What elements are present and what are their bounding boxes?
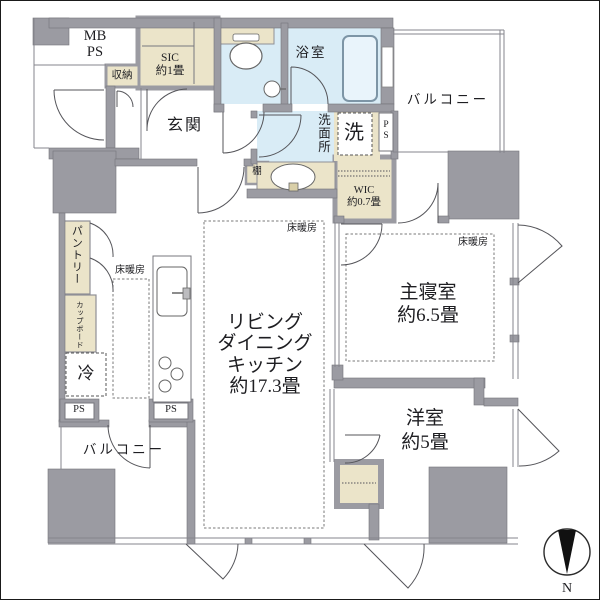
bedroom-outward-door (518, 225, 562, 283)
label-floor-heating-ldk: 床暖房 (287, 223, 317, 234)
bathtub-icon (343, 36, 377, 101)
label-ldk: リビング ダイニング キッチン 約17.3畳 (217, 312, 312, 398)
label-ps-left: PS (73, 404, 85, 416)
hall-ldk-door (198, 167, 244, 213)
toilet-lid (233, 34, 259, 41)
label-washroom: 洗面所 (316, 113, 330, 154)
label-cupboard: カップボード (75, 301, 83, 349)
wic-door (398, 183, 438, 223)
master-bedroom-door (341, 224, 382, 265)
western-room-left-window (330, 389, 334, 462)
label-balcony-top: バルコニー (407, 92, 489, 107)
shuno-door (117, 91, 133, 107)
floor-plan: MB PS 収納 SIC 約1畳 玄関 浴室 バルコニー 洗面所 洗 P S 棚… (0, 0, 600, 600)
ldk-bedroom-partition (335, 223, 339, 367)
vanity-faucet (289, 183, 298, 191)
toilet-icon (230, 43, 262, 69)
kitchen-faucet (183, 288, 190, 299)
label-washer: 洗 (344, 122, 364, 144)
corner-basin-icon (264, 81, 280, 97)
label-ps-vertical: P S (383, 120, 388, 143)
master-bedroom-window (513, 223, 518, 379)
south-window-sash-right (364, 544, 424, 588)
floor-heating-kitchen (113, 279, 149, 398)
western-room-closet (337, 462, 381, 506)
label-wic: WIC 約0.7畳 (347, 185, 381, 209)
label-fridge: 冷 (78, 364, 95, 383)
label-genkan: 玄関 (167, 117, 203, 135)
bathroom-window (382, 47, 393, 87)
label-master-bedroom: 主寝室 約6.5畳 (397, 282, 459, 328)
label-bathroom: 浴室 (296, 45, 327, 60)
label-sic: SIC 約1畳 (156, 52, 185, 78)
label-floor-heating-bedroom: 床暖房 (458, 237, 488, 248)
western-room-outward-door (518, 409, 559, 466)
closet-door (345, 435, 380, 463)
kitchen-sink-icon (157, 267, 187, 316)
compass (544, 529, 590, 575)
label-shelf: 棚 (252, 167, 262, 178)
label-compass-north: N (562, 581, 572, 597)
south-window-sash-left (186, 544, 238, 579)
label-pantry: パントリー (70, 225, 82, 285)
label-mb-ps: MB PS (84, 28, 107, 60)
label-western-room: 洋室 約5畳 (401, 407, 449, 455)
label-balcony-bottom: バルコニー (83, 442, 165, 457)
label-shuno: 収納 (112, 70, 133, 82)
entry-door (54, 90, 104, 140)
floor-plan-drawing (1, 1, 600, 600)
label-ps-mid: PS (165, 404, 177, 416)
pantry-folding-door (90, 223, 113, 292)
label-floor-heating-kitchen: 床暖房 (115, 265, 145, 276)
western-room-window (513, 409, 518, 467)
